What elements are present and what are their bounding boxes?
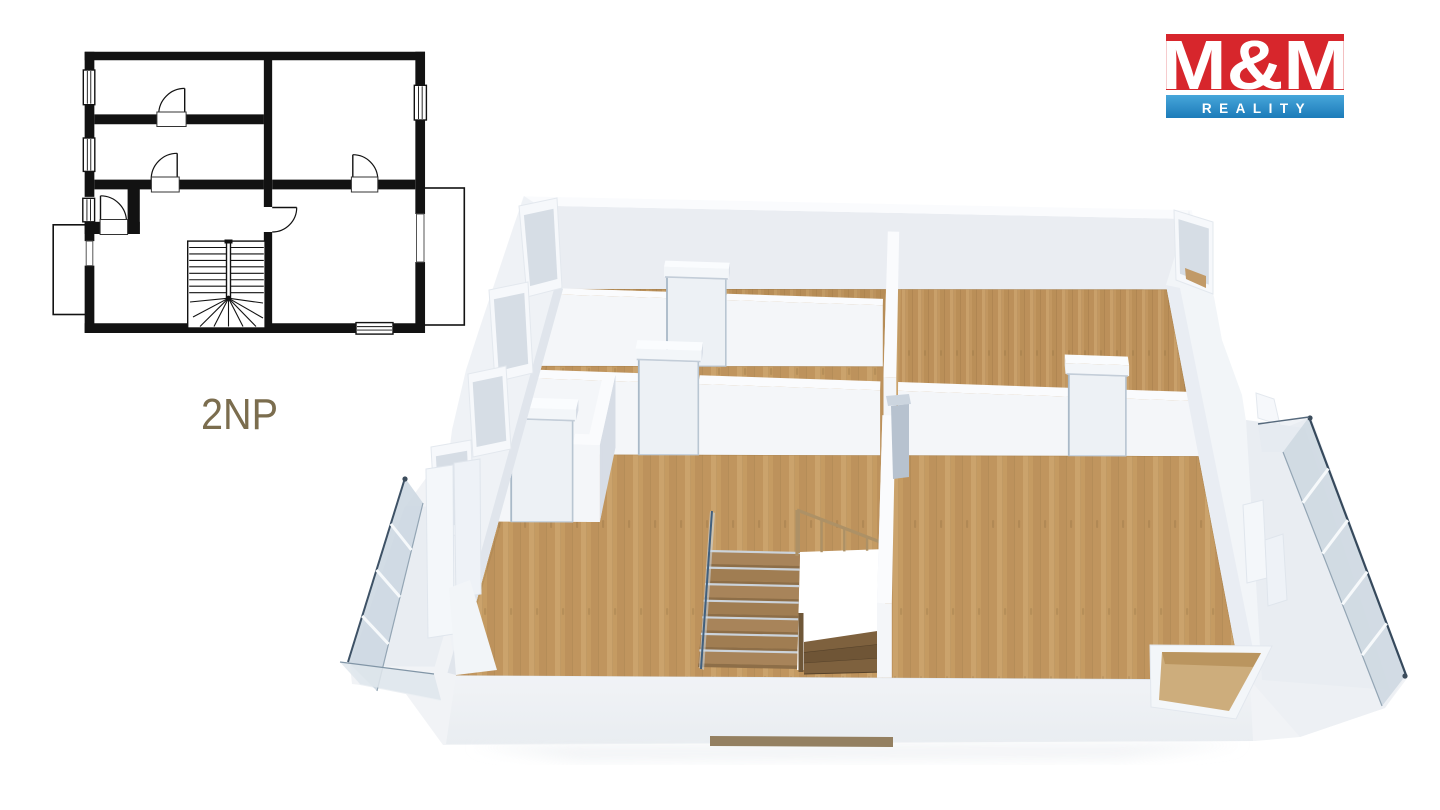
- svg-text:M&M: M&M: [1166, 34, 1344, 104]
- svg-text:REALITY: REALITY: [1202, 101, 1312, 116]
